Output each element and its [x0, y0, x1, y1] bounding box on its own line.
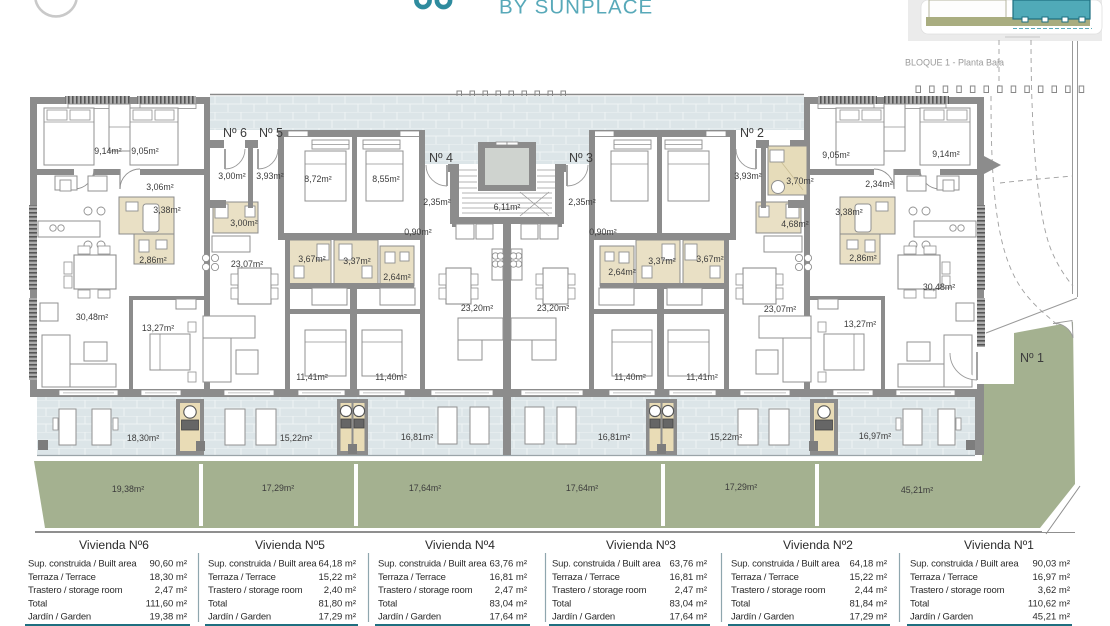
svg-text:17,64m²: 17,64m²	[409, 483, 441, 493]
svg-text:Vivienda Nº3: Vivienda Nº3	[606, 538, 676, 552]
svg-text:3,00m²: 3,00m²	[230, 218, 257, 228]
svg-text:15,22m²: 15,22m²	[280, 433, 312, 443]
svg-text:2,44 m²: 2,44 m²	[855, 585, 887, 596]
svg-text:Sup. construida / Built area: Sup. construida / Built area	[208, 559, 317, 570]
svg-text:9,14m²: 9,14m²	[94, 146, 121, 156]
svg-text:17,29m²: 17,29m²	[725, 482, 757, 492]
svg-text:63,76 m²: 63,76 m²	[490, 559, 528, 570]
svg-text:16,97m²: 16,97m²	[859, 431, 891, 441]
svg-text:30,48m²: 30,48m²	[923, 282, 955, 292]
svg-text:BLOQUE 1 - Planta Baja: BLOQUE 1 - Planta Baja	[905, 58, 1004, 68]
svg-text:Jardín / Garden: Jardín / Garden	[731, 612, 794, 623]
svg-text:Sup. construida / Built area: Sup. construida / Built area	[378, 559, 487, 570]
svg-text:Terraza / Terrace: Terraza / Terrace	[910, 572, 978, 583]
svg-text:11,41m²: 11,41m²	[296, 372, 328, 382]
svg-text:16,97 m²: 16,97 m²	[1033, 572, 1071, 583]
svg-text:Nº 5: Nº 5	[259, 126, 283, 140]
svg-text:Trastero / storage room: Trastero / storage room	[731, 585, 826, 596]
svg-text:17,64 m²: 17,64 m²	[670, 612, 708, 623]
svg-text:2,40 m²: 2,40 m²	[324, 585, 356, 596]
svg-text:17,29 m²: 17,29 m²	[319, 612, 357, 623]
svg-text:2,64m²: 2,64m²	[608, 267, 635, 277]
svg-text:2,35m²: 2,35m²	[568, 197, 595, 207]
svg-text:Vivienda Nº5: Vivienda Nº5	[255, 538, 325, 552]
svg-text:15,22m²: 15,22m²	[710, 432, 742, 442]
svg-text:9,14m²: 9,14m²	[932, 149, 959, 159]
svg-text:45,21m²: 45,21m²	[901, 485, 933, 495]
svg-text:Terraza / Terrace: Terraza / Terrace	[208, 572, 276, 583]
svg-text:11,40m²: 11,40m²	[375, 372, 407, 382]
svg-text:3,00m²: 3,00m²	[218, 171, 245, 181]
svg-text:Trastero / storage room: Trastero / storage room	[28, 585, 123, 596]
svg-text:17,29m²: 17,29m²	[262, 483, 294, 493]
svg-text:90,03 m²: 90,03 m²	[1033, 559, 1071, 570]
svg-text:Vivienda Nº1: Vivienda Nº1	[964, 538, 1034, 552]
svg-text:Vivienda Nº2: Vivienda Nº2	[783, 538, 853, 552]
svg-text:2,47 m²: 2,47 m²	[155, 585, 187, 596]
svg-text:3,38m²: 3,38m²	[153, 205, 180, 215]
svg-text:Trastero / storage room: Trastero / storage room	[378, 585, 473, 596]
svg-text:3,67m²: 3,67m²	[298, 254, 325, 264]
svg-text:111,60 m²: 111,60 m²	[146, 598, 187, 609]
svg-text:Vivienda Nº4: Vivienda Nº4	[425, 538, 495, 552]
svg-text:Sup. construida / Built area: Sup. construida / Built area	[910, 559, 1019, 570]
svg-text:Jardín / Garden: Jardín / Garden	[208, 612, 271, 623]
svg-text:4,68m²: 4,68m²	[781, 219, 808, 229]
svg-text:64,18 m²: 64,18 m²	[850, 559, 888, 570]
svg-text:2,86m²: 2,86m²	[139, 255, 166, 265]
svg-text:2,34m²: 2,34m²	[865, 179, 892, 189]
svg-text:Total: Total	[208, 598, 227, 609]
svg-text:Total: Total	[552, 598, 571, 609]
svg-text:13,27m²: 13,27m²	[844, 319, 876, 329]
svg-text:Nº 6: Nº 6	[223, 126, 247, 140]
svg-text:Total: Total	[910, 598, 929, 609]
svg-text:3,38m²: 3,38m²	[835, 207, 862, 217]
svg-text:30,48m²: 30,48m²	[76, 312, 108, 322]
svg-text:64,18 m²: 64,18 m²	[319, 559, 357, 570]
svg-text:45,21 m²: 45,21 m²	[1033, 612, 1071, 623]
svg-text:11,41m²: 11,41m²	[686, 372, 718, 382]
svg-text:15,22 m²: 15,22 m²	[850, 572, 888, 583]
svg-text:110,62 m²: 110,62 m²	[1028, 598, 1070, 609]
svg-text:Vivienda Nº6: Vivienda Nº6	[79, 538, 149, 552]
svg-text:Terraza / Terrace: Terraza / Terrace	[731, 572, 799, 583]
svg-text:Trastero / storage room: Trastero / storage room	[208, 585, 303, 596]
svg-text:11,40m²: 11,40m²	[614, 372, 646, 382]
svg-text:Nº 4: Nº 4	[429, 151, 453, 165]
svg-text:15,22 m²: 15,22 m²	[319, 572, 357, 583]
svg-text:2,35m²: 2,35m²	[423, 197, 450, 207]
svg-text:8,55m²: 8,55m²	[372, 174, 399, 184]
svg-text:9,05m²: 9,05m²	[822, 150, 849, 160]
svg-text:3,06m²: 3,06m²	[146, 182, 173, 192]
svg-text:BY SUNPLACE: BY SUNPLACE	[499, 0, 653, 19]
svg-text:Total: Total	[731, 598, 750, 609]
svg-text:Nº 2: Nº 2	[740, 126, 764, 140]
svg-text:3,70m²: 3,70m²	[786, 176, 813, 186]
svg-text:17,64m²: 17,64m²	[566, 483, 598, 493]
svg-text:Terraza / Terrace: Terraza / Terrace	[552, 572, 620, 583]
svg-text:18,30m²: 18,30m²	[127, 433, 159, 443]
svg-text:Sup. construida / Built area: Sup. construida / Built area	[552, 559, 661, 570]
svg-text:2,86m²: 2,86m²	[849, 253, 876, 263]
svg-text:9,05m²: 9,05m²	[131, 146, 158, 156]
svg-text:13,27m²: 13,27m²	[142, 323, 174, 333]
svg-text:Jardín / Garden: Jardín / Garden	[378, 612, 441, 623]
svg-text:Terraza / Terrace: Terraza / Terrace	[28, 572, 96, 583]
svg-text:23,07m²: 23,07m²	[764, 304, 796, 314]
svg-text:0,90m²: 0,90m²	[404, 227, 431, 237]
svg-text:8,72m²: 8,72m²	[304, 174, 331, 184]
svg-text:23,20m²: 23,20m²	[461, 303, 493, 313]
svg-text:16,81 m²: 16,81 m²	[670, 572, 708, 583]
svg-text:81,80 m²: 81,80 m²	[319, 598, 357, 609]
svg-text:Jardín / Garden: Jardín / Garden	[28, 612, 91, 623]
svg-text:16,81 m²: 16,81 m²	[490, 572, 528, 583]
svg-text:6,11m²: 6,11m²	[494, 202, 521, 212]
svg-text:19,38m²: 19,38m²	[112, 484, 144, 494]
svg-text:3,37m²: 3,37m²	[648, 256, 675, 266]
svg-text:2,47 m²: 2,47 m²	[675, 585, 707, 596]
svg-text:3,93m²: 3,93m²	[734, 171, 761, 181]
svg-text:18,30 m²: 18,30 m²	[150, 572, 188, 583]
svg-text:23,07m²: 23,07m²	[231, 259, 263, 269]
svg-text:Trastero / storage room: Trastero / storage room	[910, 585, 1005, 596]
svg-text:81,84 m²: 81,84 m²	[850, 598, 888, 609]
svg-text:83,04 m²: 83,04 m²	[670, 598, 708, 609]
svg-text:63,76 m²: 63,76 m²	[670, 559, 708, 570]
svg-text:Trastero / storage room: Trastero / storage room	[552, 585, 647, 596]
svg-text:3,93m²: 3,93m²	[256, 171, 283, 181]
svg-text:0,90m²: 0,90m²	[589, 227, 616, 237]
svg-text:83,04 m²: 83,04 m²	[490, 598, 528, 609]
svg-text:Jardín / Garden: Jardín / Garden	[910, 612, 973, 623]
svg-text:23,20m²: 23,20m²	[537, 303, 569, 313]
svg-text:3,37m²: 3,37m²	[343, 256, 370, 266]
svg-text:Nº 1: Nº 1	[1020, 351, 1044, 365]
svg-text:Sup. construida / Built area: Sup. construida / Built area	[731, 559, 840, 570]
svg-text:Jardín / Garden: Jardín / Garden	[552, 612, 615, 623]
svg-text:2,47 m²: 2,47 m²	[495, 585, 527, 596]
svg-text:Sup. construida / Built area: Sup. construida / Built area	[28, 559, 137, 570]
svg-text:16,81m²: 16,81m²	[401, 432, 433, 442]
svg-text:Nº 3: Nº 3	[569, 151, 593, 165]
svg-text:17,29 m²: 17,29 m²	[850, 612, 888, 623]
svg-text:90,60 m²: 90,60 m²	[150, 559, 188, 570]
svg-text:Total: Total	[378, 598, 397, 609]
svg-text:16,81m²: 16,81m²	[598, 432, 630, 442]
svg-text:2,64m²: 2,64m²	[383, 272, 410, 282]
svg-text:3,62 m²: 3,62 m²	[1038, 585, 1070, 596]
svg-text:Total: Total	[28, 598, 47, 609]
svg-text:3,67m²: 3,67m²	[696, 254, 723, 264]
svg-text:Terraza / Terrace: Terraza / Terrace	[378, 572, 446, 583]
svg-text:19,38 m²: 19,38 m²	[150, 612, 188, 623]
svg-text:17,64 m²: 17,64 m²	[490, 612, 528, 623]
